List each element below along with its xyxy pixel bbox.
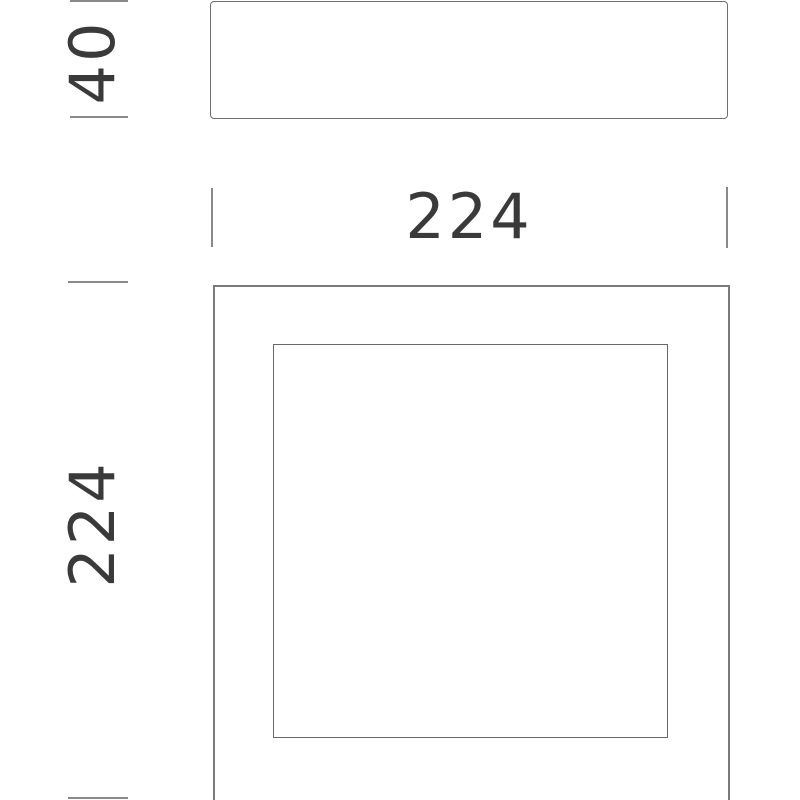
depth-dim-label: 40 xyxy=(62,20,124,105)
height-dim-label: 224 xyxy=(62,460,124,587)
width-dim-label: 224 xyxy=(210,186,728,248)
dimension-drawing: 40 224 224 xyxy=(0,0,800,800)
front-view-outline xyxy=(213,285,730,800)
depth-dim-tick-bottom xyxy=(70,116,128,118)
depth-dim-tick-top xyxy=(70,0,128,2)
side-view-outline xyxy=(210,1,728,119)
height-dim-tick-bottom xyxy=(68,797,128,799)
height-dim-tick-top xyxy=(68,281,128,283)
front-view-inner-panel xyxy=(273,344,668,738)
